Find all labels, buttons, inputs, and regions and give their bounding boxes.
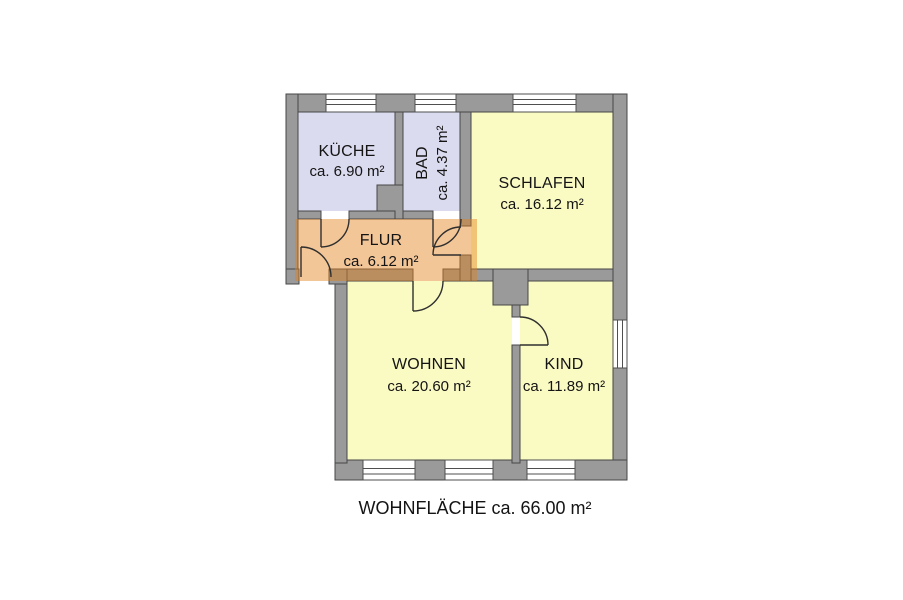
wall-wohnen-kind-stub xyxy=(512,305,520,317)
window-schlafen xyxy=(513,94,576,112)
wall-lower-left xyxy=(335,269,347,463)
label-wohnen-area: ca. 20.60 m² xyxy=(387,378,470,395)
room-bad xyxy=(403,112,460,211)
window-kind-bottom xyxy=(527,460,575,480)
window-bad xyxy=(415,94,456,112)
floor-area-total: WOHNFLÄCHE ca. 66.00 m² xyxy=(358,498,591,518)
label-wohnen: WOHNEN xyxy=(392,356,466,373)
label-kind: KIND xyxy=(544,356,583,373)
label-schlafen-area: ca. 16.12 m² xyxy=(500,196,583,213)
label-bad-area: ca. 4.37 m² xyxy=(434,125,451,200)
label-flur: FLUR xyxy=(360,232,403,249)
wall-bad-flur xyxy=(403,211,433,219)
floor-plan: KÜCHE ca. 6.90 m² BAD ca. 4.37 m² SCHLAF… xyxy=(0,0,903,600)
floor-plan-page: KÜCHE ca. 6.90 m² BAD ca. 4.37 m² SCHLAF… xyxy=(0,0,903,600)
wall-flur-schlafen-upper xyxy=(460,112,471,226)
wall-kueche-flur-b xyxy=(349,211,395,219)
label-flur-area: ca. 6.12 m² xyxy=(343,253,418,270)
wall-kueche-flur-a xyxy=(298,211,321,219)
label-kind-area: ca. 11.89 m² xyxy=(523,378,605,395)
window-kueche xyxy=(326,94,376,112)
label-kueche: KÜCHE xyxy=(318,142,375,160)
flur-overlay xyxy=(295,219,477,281)
window-kind-right xyxy=(613,320,627,368)
window-wohnen-right xyxy=(445,460,493,480)
wall-right xyxy=(613,94,627,480)
label-bad: BAD xyxy=(414,146,431,180)
label-schlafen: SCHLAFEN xyxy=(499,175,586,192)
wall-wohnen-kind-block xyxy=(493,269,528,305)
label-kueche-area: ca. 6.90 m² xyxy=(309,163,384,180)
window-wohnen-left xyxy=(363,460,415,480)
wall-wohnen-kind xyxy=(512,345,520,463)
